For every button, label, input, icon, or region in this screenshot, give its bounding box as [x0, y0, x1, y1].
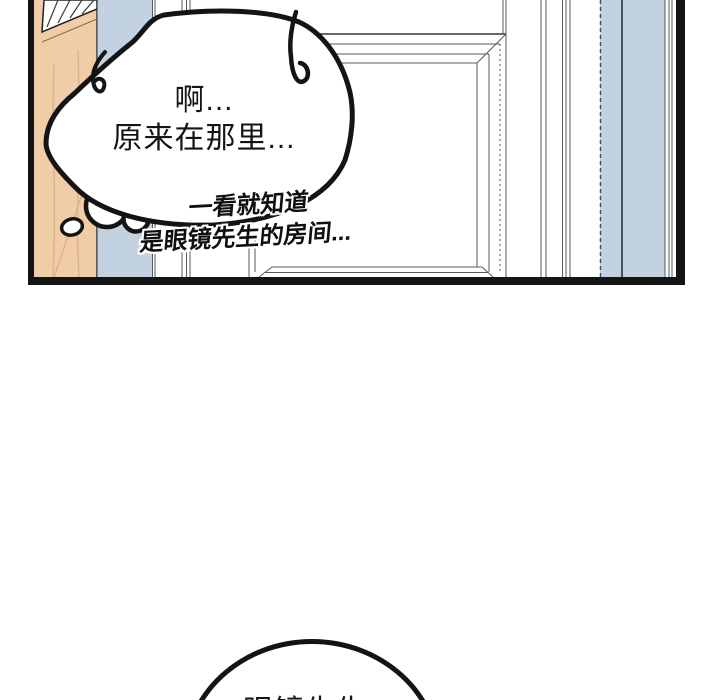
handwritten-caption: 一看就知道 是眼镜先生的房间... [119, 183, 374, 260]
thought-line-1: 啊... [94, 82, 314, 120]
panel-door-scene: 啊... 原来在那里... 一看就知道 是眼镜先生的房间... [28, 0, 685, 285]
thought-bubble-text: 啊... 原来在那里... [94, 82, 314, 158]
thought-line-2: 原来在那里... [94, 120, 314, 158]
wall-strip-right [600, 0, 665, 277]
speech-bubble-text: 眼镜先生 [175, 686, 435, 700]
molding-corner-diagonal [477, 34, 506, 63]
comic-page: 啊... 原来在那里... 一看就知道 是眼镜先生的房间... 眼镜先生 [0, 0, 720, 700]
